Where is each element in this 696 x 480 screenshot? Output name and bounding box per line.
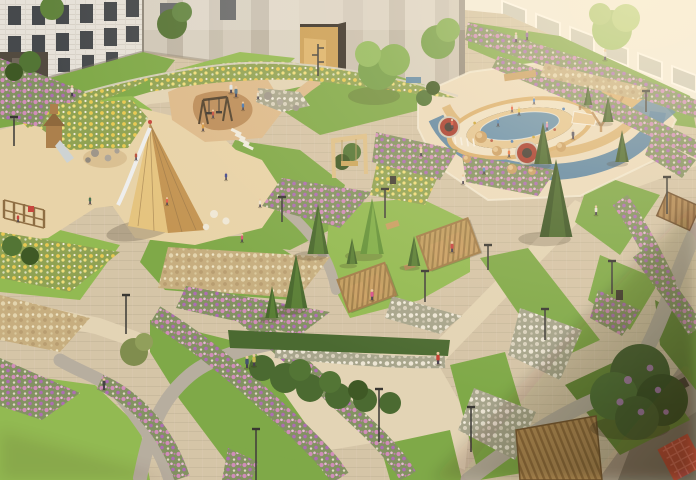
scene-canvas xyxy=(0,0,696,480)
warm-tint xyxy=(0,0,696,480)
courtyard-rendering xyxy=(0,0,696,480)
lighting-overlays xyxy=(0,0,696,480)
